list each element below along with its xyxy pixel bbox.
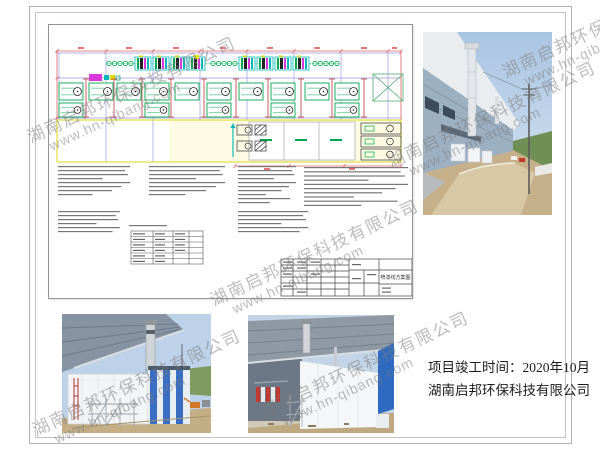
notes-column-1 xyxy=(58,166,130,195)
cad-drawing-svg: 喷漆线方案图 xyxy=(49,25,412,298)
photo-equipment-left xyxy=(62,314,211,433)
document-page: 喷漆线方案图 xyxy=(0,0,600,450)
notes-column-3 xyxy=(238,166,296,203)
small-chimney xyxy=(495,96,499,124)
white-van xyxy=(511,156,517,160)
hoist-assembly xyxy=(89,74,120,81)
white-wall-panel xyxy=(300,361,378,429)
drawing-title: 喷漆线方案图 xyxy=(380,274,410,281)
cad-sheet: 喷漆线方案图 xyxy=(48,24,413,299)
red-car xyxy=(519,158,525,162)
highlight-dot xyxy=(195,55,199,59)
white-enclosure xyxy=(68,374,148,424)
elevation-strip xyxy=(107,55,339,70)
oven-units-row-top xyxy=(59,83,359,100)
photo-equipment-middle xyxy=(248,315,394,433)
table-heading xyxy=(129,225,167,226)
oven-units-row-bottom xyxy=(59,103,359,117)
notes-column-2 xyxy=(149,166,225,195)
caption-completion-date: 项目竣工时间：2020年10月 xyxy=(428,357,588,380)
door xyxy=(376,414,389,428)
photo-factory-exterior xyxy=(423,32,552,215)
caption-company-name: 湖南启邦环保科技有限公司 xyxy=(428,380,588,403)
notes-column-1b xyxy=(58,211,120,232)
notes-column-3b xyxy=(238,211,308,232)
chimney xyxy=(144,320,157,370)
yellow-zone xyxy=(57,120,401,162)
motor-table xyxy=(131,231,203,264)
caption-block: 项目竣工时间：2020年10月 湖南启邦环保科技有限公司 xyxy=(428,357,588,402)
blue-modules xyxy=(148,366,190,424)
blue-sign xyxy=(378,343,394,414)
notes-column-4 xyxy=(304,167,408,206)
